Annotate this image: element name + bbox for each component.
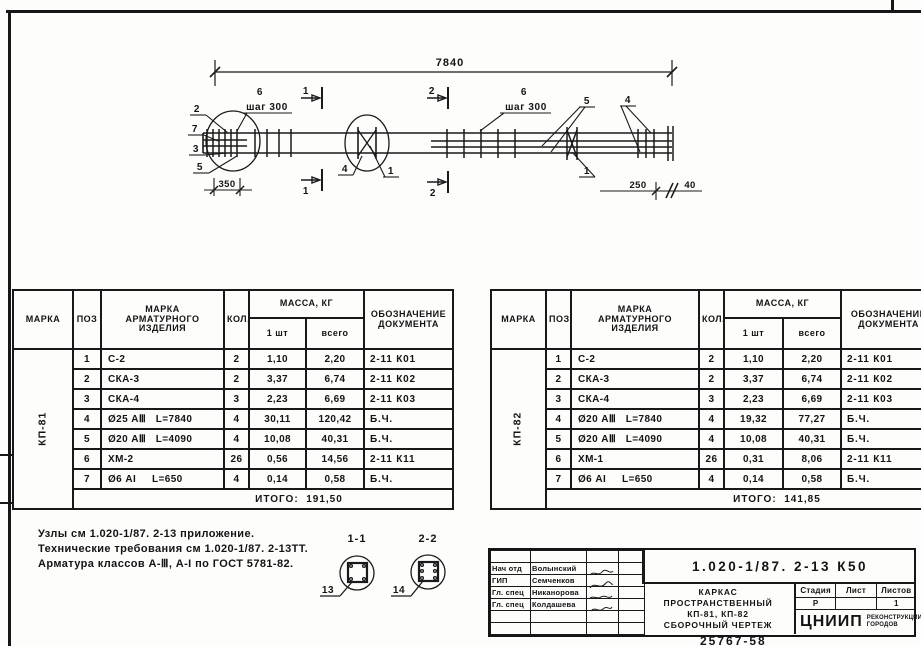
spec-table-kp81: МАРКА ПОЗ МАРКА АРМАТУРНОГО ИЗДЕЛИЯ КОЛ.… [12, 289, 454, 510]
cell-one: 30,11 [249, 409, 306, 429]
cell-one: 19,32 [724, 409, 783, 429]
cell-pos: 1 [73, 349, 101, 369]
dim-350-value: 350 [218, 179, 235, 190]
header-pos: ПОЗ [73, 290, 101, 349]
total-label: ИТОГО: [255, 494, 298, 505]
callout-right-5: 5 [584, 96, 590, 107]
cell-item: Ø6 АI L=650 [101, 469, 224, 489]
cell-pos: 7 [73, 469, 101, 489]
cell-doc: 2-11 К01 [364, 349, 453, 369]
detail-callout-13: 13 [322, 585, 334, 596]
border-top [6, 10, 921, 13]
step-left-num: 6 [257, 87, 263, 98]
cell-qty: 2 [224, 369, 249, 389]
header-mass: МАССА, КГ [249, 290, 364, 318]
cell-pos: 3 [546, 389, 571, 409]
cell-all: 6,69 [306, 389, 364, 409]
section-mark-1-top: 1 [303, 86, 309, 97]
cell-one: 10,08 [724, 429, 783, 449]
cell-doc: Б.Ч. [841, 429, 921, 449]
callout-mid-1: 1 [388, 166, 394, 177]
header-doc: ОБОЗНАЧЕНИЕ ДОКУМЕНТА [841, 290, 921, 349]
signer-role: Гл. спец [491, 599, 531, 611]
cell-all: 8,06 [783, 449, 841, 469]
signer-name: Никанорова [531, 587, 587, 599]
document-number: 1.020-1/87. 2-13 К50 [642, 550, 916, 584]
cell-item: СКА-3 [571, 369, 699, 389]
project-title: КАРКАС ПРОСТРАНСТВЕННЫЙ КП-81, КП-82 СБО… [642, 584, 794, 634]
callout-5: 5 [197, 162, 203, 173]
step-label-right [480, 113, 551, 131]
header-pos: ПОЗ [546, 290, 571, 349]
table-row: 7Ø6 АI L=65040,140,58Б.Ч. [13, 469, 453, 489]
table-row: 2СКА-323,376,742-11 К02 [491, 369, 921, 389]
cell-doc: Б.Ч. [364, 429, 453, 449]
fold-mark-1 [0, 454, 12, 456]
cell-qty: 26 [699, 449, 724, 469]
callout-mid-4: 4 [342, 164, 348, 175]
header-qty: КОЛ. [699, 290, 724, 349]
step-right-text: шаг 300 [505, 102, 547, 113]
title-block: Нач отд Волынский ГИП Семченков Гл. спец… [488, 548, 916, 637]
cell-one: 0,14 [724, 469, 783, 489]
joint-detail-ellipse [206, 111, 389, 171]
cell-qty: 4 [699, 469, 724, 489]
callout-leaders-right [542, 106, 651, 177]
stage-value: Р [796, 598, 836, 609]
table-row: 6ХМ-1260,318,062-11 К11 [491, 449, 921, 469]
signer-role: ГИП [491, 575, 531, 587]
cell-one: 2,23 [724, 389, 783, 409]
cell-doc: 2-11 К01 [841, 349, 921, 369]
cell-all: 6,74 [783, 369, 841, 389]
stage-header-row: Стадия Лист Листов [796, 584, 916, 598]
section-label-2-2: 2-2 [419, 533, 438, 545]
spec-table-kp82: МАРКА ПОЗ МАРКА АРМАТУРНОГО ИЗДЕЛИЯ КОЛ.… [490, 289, 921, 510]
table-row: 6ХМ-2260,5614,562-11 К11 [13, 449, 453, 469]
table-row: 5Ø20 АⅢ L=4090410,0840,31Б.Ч. [491, 429, 921, 449]
total-value: 191,50 [306, 494, 343, 505]
fold-mark-2 [0, 502, 12, 504]
signer-name: Волынский [531, 563, 587, 575]
table-row: КП-81 1 С-2 2 1,10 2,20 2-11 К01 [13, 349, 453, 369]
cell-pos: 1 [546, 349, 571, 369]
mark-cell: КП-82 [491, 349, 546, 509]
callout-right-1: 1 [584, 166, 590, 177]
notes-block: Узлы см 1.020-1/87. 2-13 приложение. Тех… [38, 527, 368, 572]
signer-role: Гл. спец [491, 587, 531, 599]
section-mark-2-top: 2 [429, 86, 435, 97]
total-row: ИТОГО: 141,85 [491, 489, 921, 509]
signer-role: Нач отд [491, 563, 531, 575]
cell-pos: 7 [546, 469, 571, 489]
archive-number: 25767-58 [700, 634, 767, 646]
header-one: 1 шт [249, 318, 306, 349]
cell-item: ХМ-2 [101, 449, 224, 469]
header-mark: МАРКА [13, 290, 73, 349]
header-mass: МАССА, КГ [724, 290, 841, 318]
detail-callout-14: 14 [393, 585, 405, 596]
cell-item: Ø20 АⅢ L=4090 [571, 429, 699, 449]
cell-one: 3,37 [724, 369, 783, 389]
cell-item: Ø6 АI L=650 [571, 469, 699, 489]
cell-qty: 4 [224, 429, 249, 449]
step-left-text: шаг 300 [246, 102, 288, 113]
signature-mark [587, 563, 619, 575]
sheet-value [836, 598, 876, 609]
cell-all: 77,27 [783, 409, 841, 429]
cell-item: Ø25 АⅢ L=7840 [101, 409, 224, 429]
sheet-label: Лист [836, 584, 876, 597]
cell-doc: 2-11 К02 [841, 369, 921, 389]
header-doc: ОБОЗНАЧЕНИЕ ДОКУМЕНТА [364, 290, 453, 349]
border-left [8, 10, 11, 646]
header-item: МАРКА АРМАТУРНОГО ИЗДЕЛИЯ [571, 290, 699, 349]
stage-block: Стадия Лист Листов Р 1 ЦНИИП РЕКОНСТРУКЦ… [794, 584, 916, 634]
table-row: 2СКА-323,376,742-11 К02 [13, 369, 453, 389]
callout-leaders-mid [338, 146, 399, 177]
signature-mark [587, 599, 619, 611]
cell-qty: 3 [699, 389, 724, 409]
signature-table: Нач отд Волынский ГИП Семченков Гл. спец… [490, 550, 645, 635]
cell-all: 0,58 [306, 469, 364, 489]
organization-subtitle: РЕКОНСТРУКЦИИ ГОРОДОВ [867, 615, 921, 630]
beam-stirrups [207, 126, 673, 161]
drawing-sheet: 7840 [0, 0, 921, 646]
section-mark-1-bottom: 1 [303, 186, 309, 197]
cell-doc: Б.Ч. [841, 409, 921, 429]
header-all: всего [306, 318, 364, 349]
corner-stamp-line [891, 0, 894, 13]
table-row: 3СКА-432,236,692-11 К03 [491, 389, 921, 409]
cell-doc: Б.Ч. [364, 409, 453, 429]
cell-qty: 3 [224, 389, 249, 409]
cell-doc: 2-11 К03 [364, 389, 453, 409]
stage-values-row: Р 1 [796, 598, 916, 610]
cell-qty: 2 [224, 349, 249, 369]
cell-doc: 2-11 К03 [841, 389, 921, 409]
dim-40-value: 40 [684, 180, 695, 191]
cell-doc: 2-11 К11 [364, 449, 453, 469]
cell-one: 2,23 [249, 389, 306, 409]
signer-name: Колдашева [531, 599, 587, 611]
cell-pos: 4 [73, 409, 101, 429]
callout-7: 7 [192, 124, 198, 135]
cell-all: 0,58 [783, 469, 841, 489]
cell-qty: 4 [699, 429, 724, 449]
cell-item: СКА-4 [571, 389, 699, 409]
header-all: всего [783, 318, 841, 349]
cell-all: 6,74 [306, 369, 364, 389]
total-label: ИТОГО: [733, 494, 776, 505]
mark-cell: КП-81 [13, 349, 73, 509]
cell-doc: Б.Ч. [364, 469, 453, 489]
signer-name: Семченков [531, 575, 587, 587]
header-one: 1 шт [724, 318, 783, 349]
cell-all: 6,69 [783, 389, 841, 409]
cell-pos: 5 [73, 429, 101, 449]
assembly-drawing: 7840 [0, 0, 921, 235]
cell-item: С-2 [571, 349, 699, 369]
cell-item: СКА-3 [101, 369, 224, 389]
cell-pos: 4 [546, 409, 571, 429]
cell-qty: 2 [699, 369, 724, 389]
cell-all: 2,20 [306, 349, 364, 369]
header-qty: КОЛ. [224, 290, 249, 349]
beam-bars [203, 133, 672, 153]
total-value: 141,85 [784, 494, 821, 505]
total-row: ИТОГО: 191,50 [13, 489, 453, 509]
cell-qty: 4 [699, 409, 724, 429]
step-label-left [237, 113, 292, 131]
cell-one: 1,10 [724, 349, 783, 369]
dimension-total [210, 60, 677, 86]
cell-qty: 2 [699, 349, 724, 369]
stage-label: Стадия [796, 584, 836, 597]
dimension-250-40 [600, 182, 702, 200]
dim-250-value: 250 [629, 180, 646, 191]
table-row: 3СКА-432,236,692-11 К03 [13, 389, 453, 409]
organization-logo: ЦНИИП [800, 613, 863, 631]
cell-all: 40,31 [306, 429, 364, 449]
cell-pos: 6 [546, 449, 571, 469]
callout-2: 2 [194, 104, 200, 115]
signature-mark [587, 587, 619, 599]
cell-one: 0,14 [249, 469, 306, 489]
cell-all: 40,31 [783, 429, 841, 449]
cell-one: 3,37 [249, 369, 306, 389]
organization-cell: ЦНИИП РЕКОНСТРУКЦИИ ГОРОДОВ [796, 610, 916, 634]
section-mark-2-bottom: 2 [430, 188, 436, 199]
cell-all: 2,20 [783, 349, 841, 369]
callout-right-4: 4 [625, 95, 631, 106]
cell-one: 1,10 [249, 349, 306, 369]
note-line: Арматура классов А-Ⅲ, А-I по ГОСТ 5781-8… [38, 557, 368, 572]
cell-doc: Б.Ч. [841, 469, 921, 489]
callout-leaders-left [188, 115, 237, 173]
cell-all: 14,56 [306, 449, 364, 469]
x-stirrup-right [567, 127, 577, 160]
header-item: МАРКА АРМАТУРНОГО ИЗДЕЛИЯ [101, 290, 224, 349]
note-line: Узлы см 1.020-1/87. 2-13 приложение. [38, 527, 368, 542]
dim-total-value: 7840 [436, 57, 464, 69]
cell-qty: 26 [224, 449, 249, 469]
cell-qty: 4 [224, 469, 249, 489]
cell-pos: 2 [546, 369, 571, 389]
section-marks [301, 87, 448, 193]
header-mark: МАРКА [491, 290, 546, 349]
cell-one: 0,31 [724, 449, 783, 469]
step-right-num: 6 [521, 87, 527, 98]
cell-pos: 2 [73, 369, 101, 389]
cell-qty: 4 [224, 409, 249, 429]
cell-pos: 5 [546, 429, 571, 449]
note-line: Технические требования см 1.020-1/87. 2-… [38, 542, 368, 557]
table-row: 5Ø20 АⅢ L=4090410,0840,31Б.Ч. [13, 429, 453, 449]
cell-one: 0,56 [249, 449, 306, 469]
cell-item: С-2 [101, 349, 224, 369]
callout-3: 3 [193, 144, 199, 155]
cell-one: 10,08 [249, 429, 306, 449]
table-row: 4Ø25 АⅢ L=7840430,11120,42Б.Ч. [13, 409, 453, 429]
cell-doc: 2-11 К02 [364, 369, 453, 389]
table-row: КП-82 1 С-2 2 1,10 2,20 2-11 К01 [491, 349, 921, 369]
cell-item: Ø20 АⅢ L=7840 [571, 409, 699, 429]
cell-all: 120,42 [306, 409, 364, 429]
sheets-value: 1 [877, 598, 916, 609]
cell-pos: 3 [73, 389, 101, 409]
sheets-label: Листов [877, 584, 916, 597]
cell-pos: 6 [73, 449, 101, 469]
dimension-350 [204, 178, 252, 196]
cell-doc: 2-11 К11 [841, 449, 921, 469]
table-row: 4Ø20 АⅢ L=7840419,3277,27Б.Ч. [491, 409, 921, 429]
signature-mark [587, 575, 619, 587]
cell-item: СКА-4 [101, 389, 224, 409]
cell-item: Ø20 АⅢ L=4090 [101, 429, 224, 449]
cell-item: ХМ-1 [571, 449, 699, 469]
table-row: 7Ø6 АI L=65040,140,58Б.Ч. [491, 469, 921, 489]
